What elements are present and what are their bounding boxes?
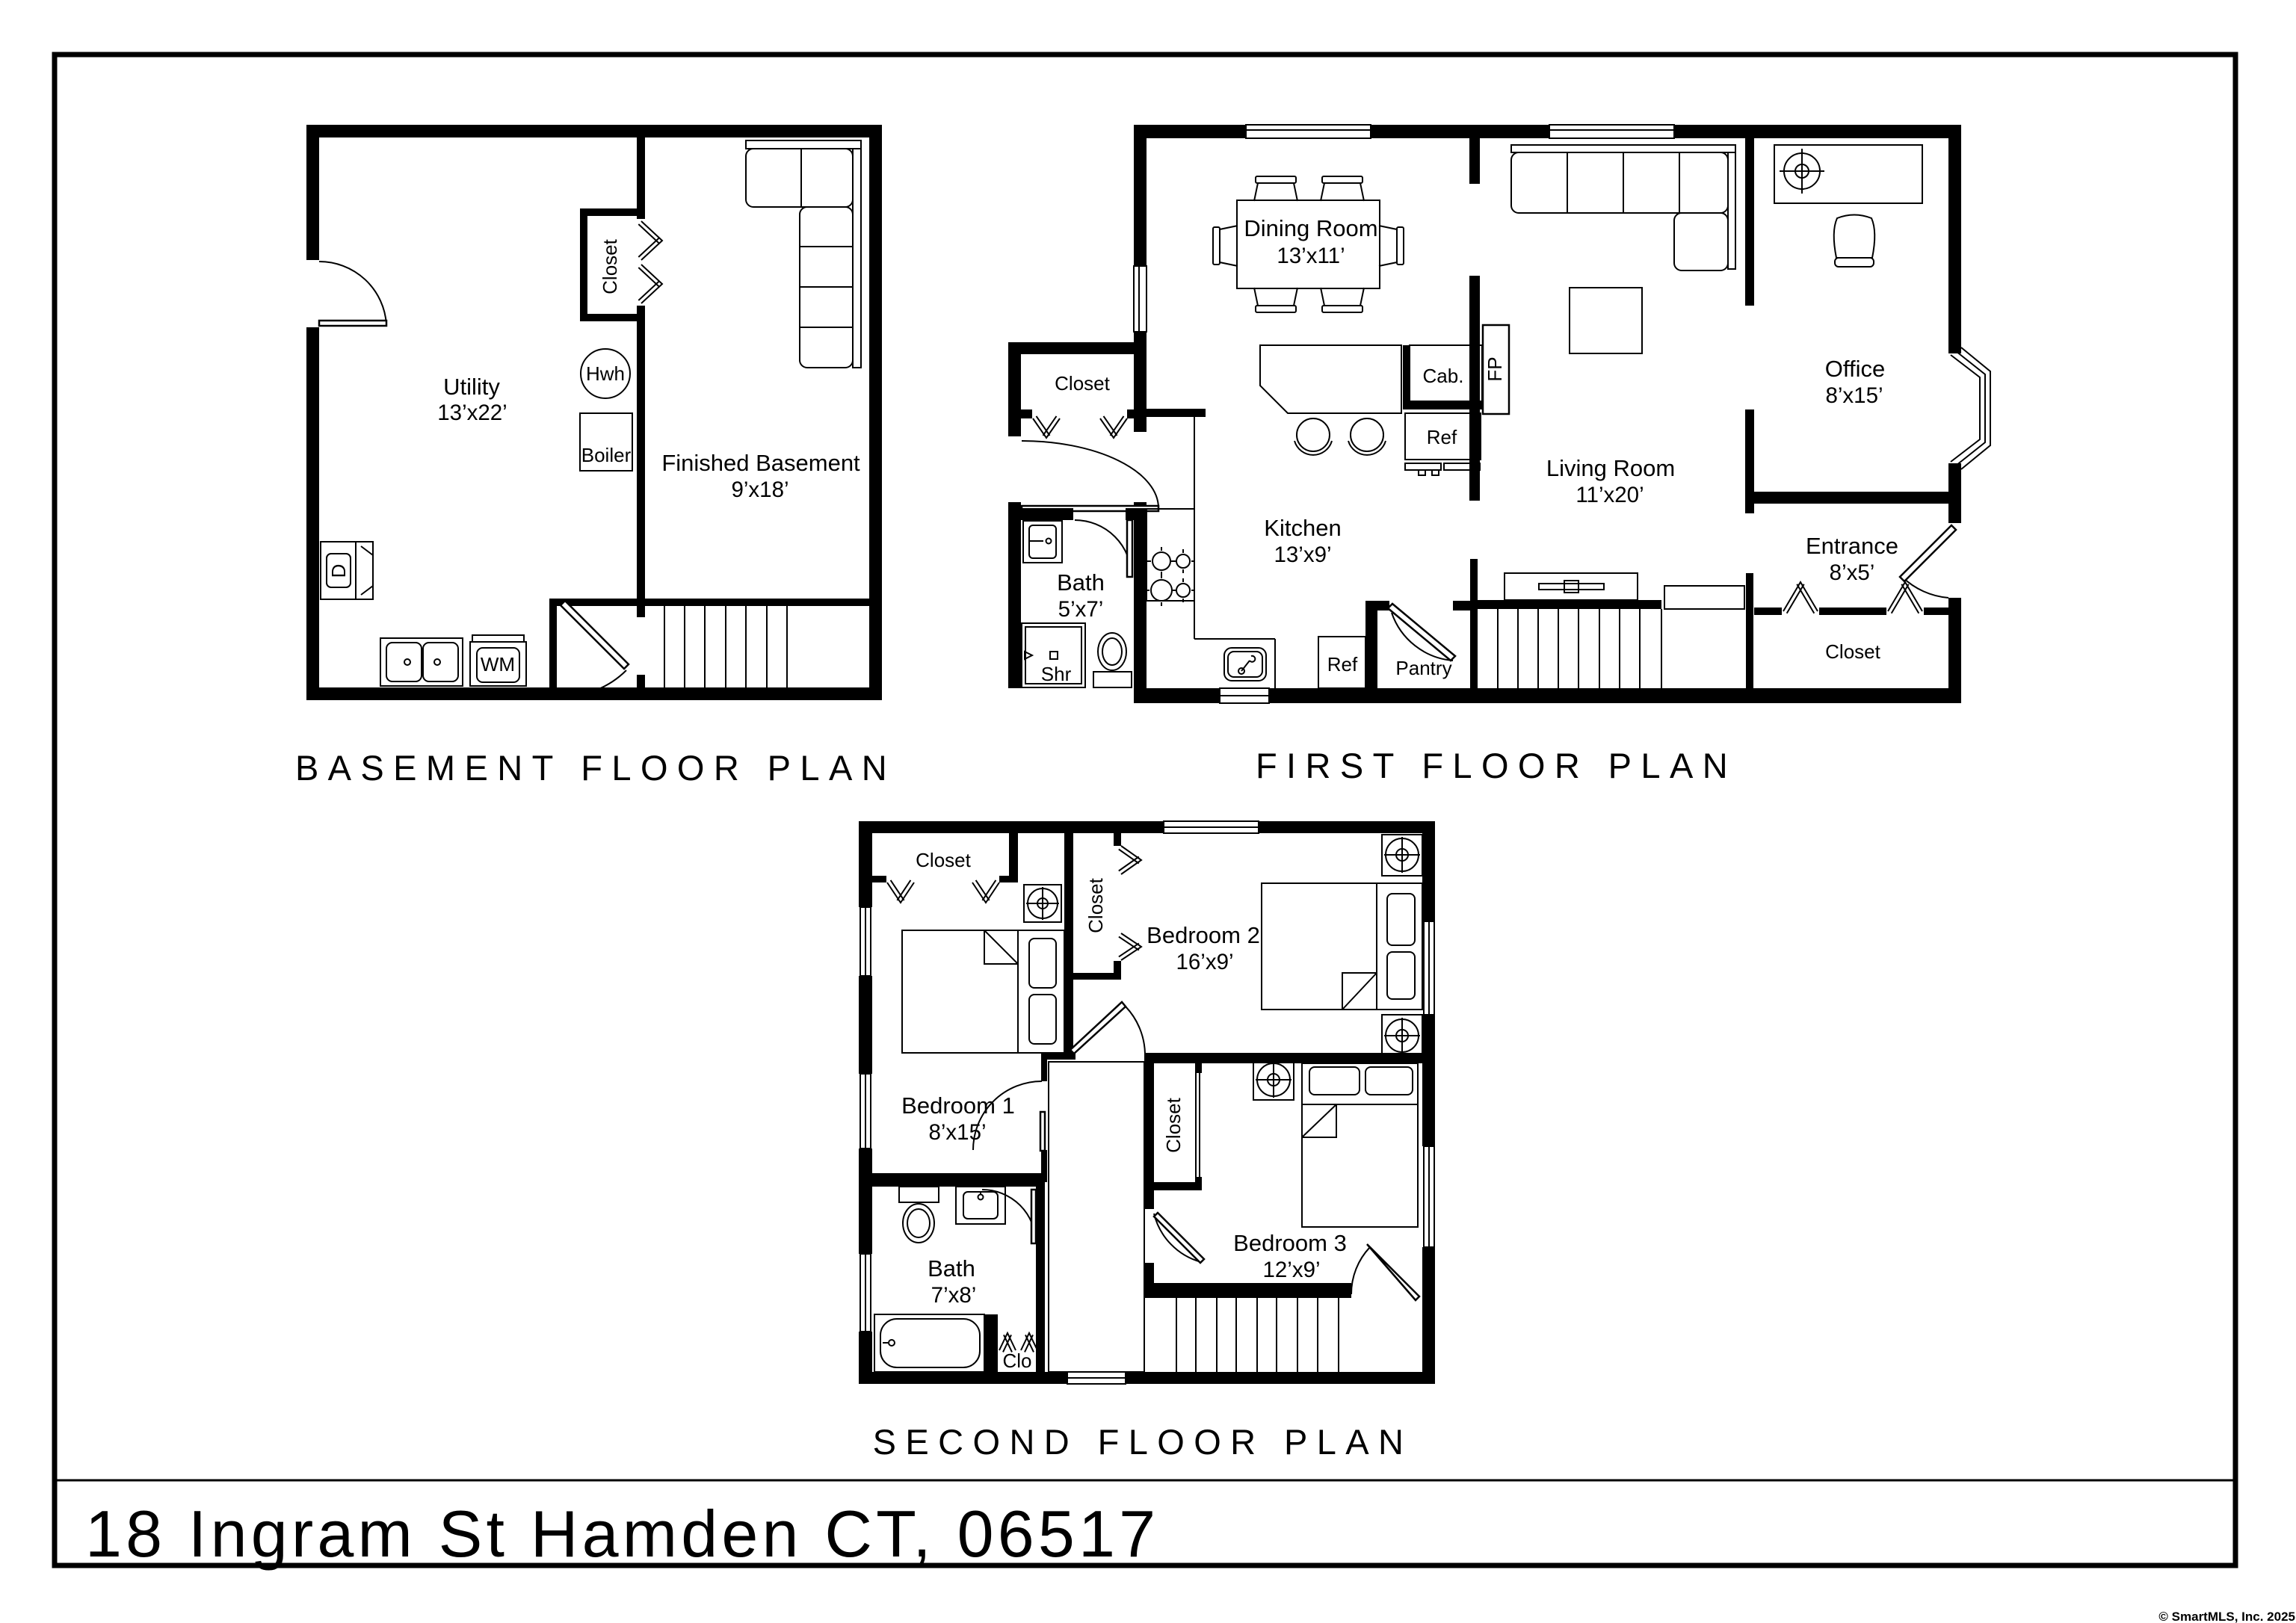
svg-text:8’x5’: 8’x5’: [1830, 560, 1875, 585]
svg-text:FP: FP: [1484, 356, 1506, 381]
svg-text:13’x11’: 13’x11’: [1277, 244, 1345, 268]
svg-text:Finished Basement: Finished Basement: [661, 450, 860, 476]
svg-text:Closet: Closet: [1055, 372, 1110, 395]
svg-text:Clo: Clo: [1002, 1350, 1031, 1372]
svg-text:Ref: Ref: [1327, 653, 1358, 676]
svg-text:Shr: Shr: [1041, 663, 1072, 685]
svg-text:8’x15’: 8’x15’: [1825, 383, 1883, 408]
svg-text:Bedroom 2: Bedroom 2: [1147, 922, 1260, 948]
svg-text:18 Ingram St Hamden CT, 06517: 18 Ingram St Hamden CT, 06517: [85, 1497, 1159, 1571]
svg-text:Closet: Closet: [599, 238, 621, 294]
svg-text:16’x9’: 16’x9’: [1176, 950, 1233, 974]
svg-text:Closet: Closet: [1162, 1097, 1185, 1152]
svg-text:Closet: Closet: [1084, 877, 1107, 933]
svg-text:7’x8’: 7’x8’: [931, 1283, 977, 1308]
svg-text:Kitchen: Kitchen: [1264, 515, 1341, 541]
svg-text:Closet: Closet: [1825, 640, 1880, 663]
svg-text:Dining Room: Dining Room: [1244, 215, 1377, 241]
svg-text:11’x20’: 11’x20’: [1576, 483, 1644, 507]
svg-text:SECOND FLOOR PLAN: SECOND FLOOR PLAN: [873, 1422, 1413, 1462]
svg-text:Bedroom 3: Bedroom 3: [1233, 1230, 1347, 1256]
svg-text:Utility: Utility: [443, 374, 500, 400]
svg-text:Pantry: Pantry: [1395, 657, 1451, 679]
svg-text:Bath: Bath: [1057, 569, 1105, 596]
svg-text:Office: Office: [1825, 356, 1885, 382]
svg-text:Closet: Closet: [916, 849, 971, 871]
svg-text:WM: WM: [481, 653, 515, 676]
svg-text:Bath: Bath: [928, 1255, 975, 1282]
svg-text:13’x9’: 13’x9’: [1274, 542, 1331, 567]
svg-text:9’x18’: 9’x18’: [731, 477, 789, 502]
svg-text:FIRST FLOOR PLAN: FIRST FLOOR PLAN: [1256, 746, 1737, 785]
svg-text:Living Room: Living Room: [1546, 455, 1675, 481]
svg-text:Entrance: Entrance: [1806, 533, 1898, 559]
svg-text:D: D: [327, 564, 350, 578]
svg-text:BASEMENT FLOOR PLAN: BASEMENT FLOOR PLAN: [295, 748, 896, 788]
svg-text:5’x7’: 5’x7’: [1058, 597, 1104, 622]
svg-text:13’x22’: 13’x22’: [437, 401, 507, 425]
svg-text:Ref: Ref: [1427, 426, 1457, 448]
svg-text:© SmartMLS, Inc. 2025: © SmartMLS, Inc. 2025: [2158, 1610, 2295, 1623]
svg-text:Boiler: Boiler: [581, 444, 632, 466]
svg-text:Hwh: Hwh: [586, 362, 625, 385]
svg-text:12’x9’: 12’x9’: [1262, 1258, 1320, 1282]
svg-text:Cab.: Cab.: [1423, 365, 1464, 387]
